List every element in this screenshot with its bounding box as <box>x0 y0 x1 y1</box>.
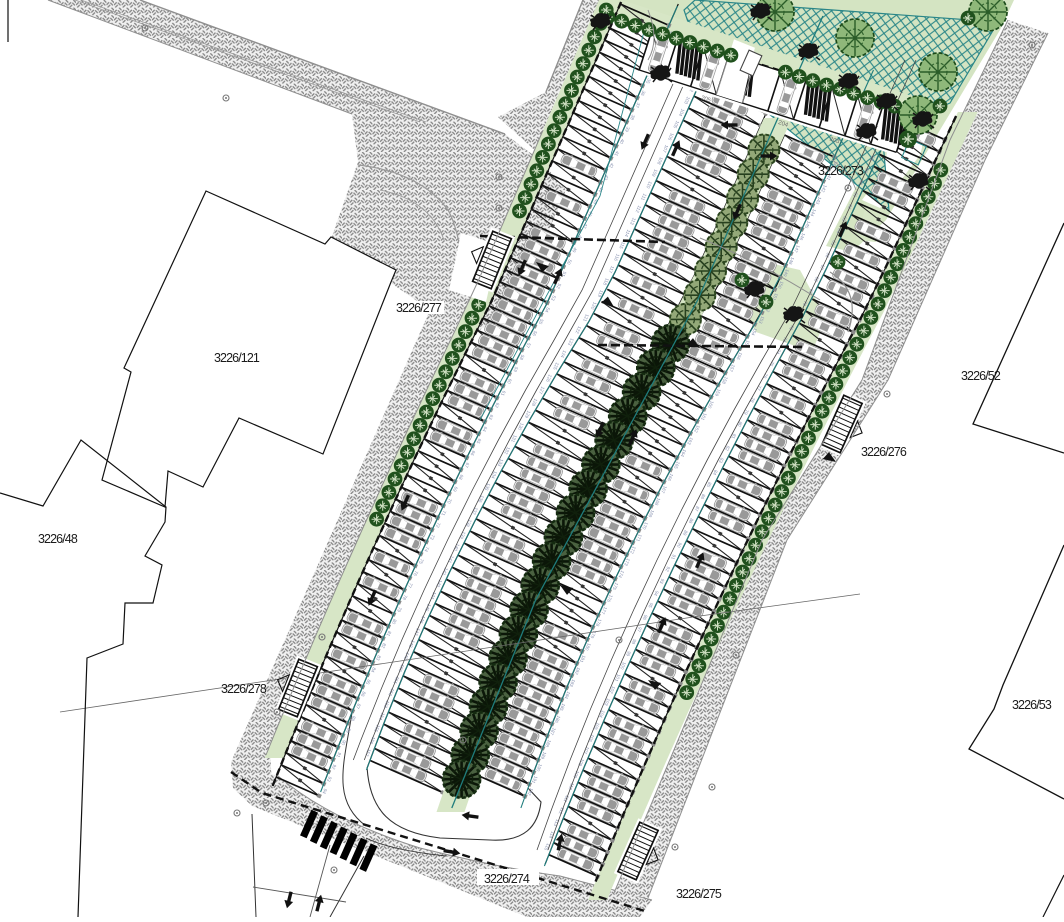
svg-text:3226/274: 3226/274 <box>484 872 530 886</box>
svg-text:3226/276: 3226/276 <box>861 445 907 459</box>
svg-text:3226/277: 3226/277 <box>396 301 442 315</box>
svg-text:3226/278: 3226/278 <box>221 682 267 696</box>
svg-text:3226/53: 3226/53 <box>1012 698 1052 712</box>
svg-text:3226/121: 3226/121 <box>214 351 260 365</box>
svg-text:3226/52: 3226/52 <box>961 369 1001 383</box>
svg-text:3226/48: 3226/48 <box>38 532 78 546</box>
svg-text:3226/273: 3226/273 <box>818 164 864 178</box>
svg-text:3226/275: 3226/275 <box>676 887 722 901</box>
